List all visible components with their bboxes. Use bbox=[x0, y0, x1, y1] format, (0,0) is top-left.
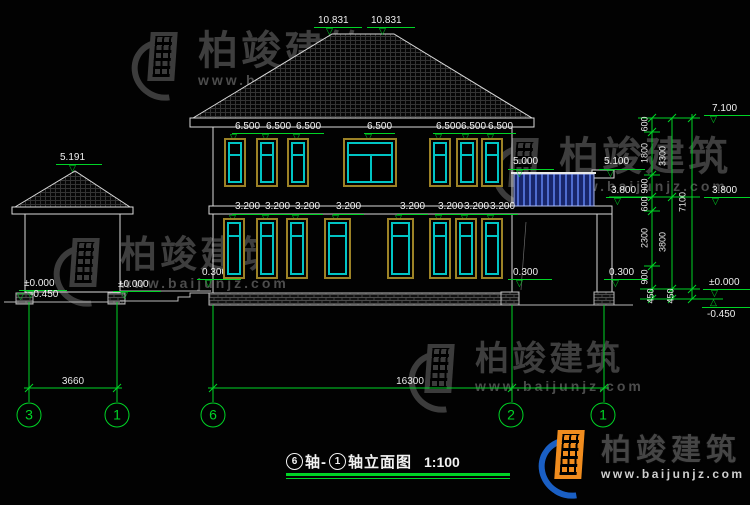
elevation-marker-triangle-up: △ bbox=[710, 298, 717, 306]
window-mullion-vertical bbox=[370, 154, 372, 181]
elevation-marker-line bbox=[508, 169, 554, 170]
elevation-marker-value: 0.300 bbox=[513, 268, 538, 278]
window-mullion-horizontal bbox=[435, 235, 445, 237]
window-f2-6 bbox=[456, 138, 478, 187]
floor1-window-head-label-line bbox=[232, 214, 263, 215]
window-f1-1 bbox=[223, 218, 245, 279]
floor1-window-head-label-value: 3.200 bbox=[400, 202, 425, 212]
floor2-window-head-label-value: 6.500 bbox=[436, 122, 461, 132]
window-f1-6 bbox=[429, 218, 451, 279]
elevation-marker-triangle: ▽ bbox=[612, 279, 619, 287]
elevation-marker-value: ±0.000 bbox=[118, 280, 149, 290]
dimension-chain-base-value: 450 bbox=[667, 288, 676, 303]
floor2-window-head-label-value: 6.500 bbox=[461, 122, 486, 132]
title-scale: 1:100 bbox=[424, 454, 460, 470]
brand-url: www.baijunjz.com bbox=[601, 467, 745, 481]
window-glazing bbox=[459, 222, 473, 275]
window-mullion-horizontal bbox=[230, 154, 240, 156]
elevation-marker-line bbox=[367, 27, 415, 28]
window-glazing bbox=[291, 142, 305, 183]
floor2-window-head-label-value: 6.500 bbox=[296, 122, 321, 132]
window-mullion-horizontal bbox=[487, 235, 497, 237]
window-glazing bbox=[433, 142, 447, 183]
axis-bubble-3: 3 bbox=[17, 403, 42, 428]
title-axis-start-bubble: 6 bbox=[286, 453, 303, 470]
elevation-marker-triangle: ▽ bbox=[379, 27, 386, 35]
axis-bubble-2: 2 bbox=[499, 403, 524, 428]
elevation-marker-value: 3.800 bbox=[611, 186, 636, 196]
pavilion-outline bbox=[12, 171, 133, 292]
window-glazing bbox=[347, 142, 393, 183]
window-mullion-horizontal bbox=[293, 154, 303, 156]
window-glazing bbox=[260, 222, 274, 275]
floor2-window-head-label-value: 6.500 bbox=[235, 122, 260, 132]
dimension-chain-value: 900 bbox=[641, 269, 650, 284]
floor1-window-head-label-value: 3.200 bbox=[336, 202, 361, 212]
elevation-marker-triangle: ▽ bbox=[326, 27, 333, 35]
balcony-railing bbox=[511, 173, 596, 206]
window-mullion-horizontal bbox=[330, 235, 345, 237]
window-mullion-horizontal bbox=[292, 235, 302, 237]
dimension-chain-value: 3800 bbox=[659, 232, 668, 252]
title-name: 轴立面图 bbox=[348, 451, 412, 472]
dimension-house-width: 16300 bbox=[396, 377, 424, 387]
window-f1-7 bbox=[455, 218, 477, 279]
elevation-marker-value: ±0.000 bbox=[24, 279, 55, 289]
window-f2-1 bbox=[224, 138, 246, 187]
window-mullion-horizontal bbox=[262, 154, 272, 156]
elevation-marker-value: 5.100 bbox=[604, 157, 629, 167]
floor2-window-head-label-value: 6.500 bbox=[488, 122, 513, 132]
floor2-window-head-label-value: 6.500 bbox=[367, 122, 392, 132]
window-f2-3 bbox=[287, 138, 309, 187]
elevation-marker-line bbox=[508, 279, 552, 280]
window-glazing bbox=[328, 222, 347, 275]
elevation-marker-triangle: ▽ bbox=[614, 197, 621, 205]
site-logo: 柏竣建筑 www.baijunjz.com bbox=[543, 428, 745, 486]
title-underline-thin bbox=[286, 478, 510, 479]
elevation-marker-value: 10.831 bbox=[371, 16, 402, 26]
floor1-window-head-label-value: 3.200 bbox=[464, 202, 489, 212]
floor1-window-head-label-value: 3.200 bbox=[295, 202, 320, 212]
window-glazing bbox=[460, 142, 474, 183]
floor1-window-head-label-value: 3.200 bbox=[490, 202, 515, 212]
elevation-marker-triangle: ▽ bbox=[121, 291, 128, 299]
window-mullion-horizontal bbox=[262, 235, 272, 237]
dimension-chain-value: 7100 bbox=[679, 192, 688, 212]
dimension-chain-value: 600 bbox=[641, 116, 650, 131]
dimension-chain-value: 600 bbox=[641, 196, 650, 211]
window-mullion-horizontal bbox=[487, 154, 497, 156]
window-f2-2 bbox=[256, 138, 278, 187]
elevation-marker-line bbox=[702, 307, 750, 308]
elevation-marker-value: 10.831 bbox=[318, 16, 349, 26]
window-f2-5 bbox=[429, 138, 451, 187]
elevation-marker-triangle: ▽ bbox=[607, 169, 614, 177]
elevation-marker-value: -0.450 bbox=[30, 290, 58, 300]
axis-bubble-6: 6 bbox=[201, 403, 226, 428]
window-f1-2 bbox=[256, 218, 278, 279]
window-f2-4 bbox=[343, 138, 397, 187]
title-underline-thick bbox=[286, 473, 510, 476]
dimension-chain-value: 2300 bbox=[641, 228, 650, 248]
plinth-and-ground bbox=[4, 291, 633, 305]
elevation-marker-triangle: ▽ bbox=[712, 197, 719, 205]
floor1-window-head-label-value: 3.200 bbox=[235, 202, 260, 212]
elevation-marker-triangle: ▽ bbox=[17, 292, 24, 300]
dimension-chain-value: 3300 bbox=[659, 146, 668, 166]
elevation-marker-triangle: ▽ bbox=[711, 289, 718, 297]
window-mullion-horizontal bbox=[462, 154, 472, 156]
elevation-marker-line bbox=[314, 27, 362, 28]
dimension-chain-value: 1800 bbox=[641, 143, 650, 163]
axis-bubble-1-left: 1 bbox=[105, 403, 130, 428]
window-glazing bbox=[433, 222, 447, 275]
dimension-pavilion-width: 3660 bbox=[62, 377, 84, 387]
title-axis-end-bubble: 1 bbox=[329, 453, 346, 470]
elevation-marker-line bbox=[197, 279, 241, 280]
elevation-marker-value: ±0.000 bbox=[709, 278, 740, 288]
window-glazing bbox=[485, 222, 499, 275]
window-f2-7 bbox=[481, 138, 503, 187]
window-glazing bbox=[227, 222, 241, 275]
window-mullion-horizontal bbox=[229, 235, 239, 237]
title-axis-mid: 轴- bbox=[305, 451, 327, 472]
elevation-marker-triangle: ▽ bbox=[710, 115, 717, 123]
window-glazing bbox=[228, 142, 242, 183]
window-mullion-horizontal bbox=[435, 154, 445, 156]
brand-logo-icon bbox=[543, 428, 593, 486]
window-f1-8 bbox=[481, 218, 503, 279]
cad-elevation-drawing: 柏竣建筑 www.baijunjz.com 柏竣建筑 www.baijunjz.… bbox=[0, 0, 750, 505]
window-mullion-horizontal bbox=[461, 235, 471, 237]
window-glazing bbox=[290, 222, 304, 275]
brand-name: 柏竣建筑 bbox=[601, 434, 745, 467]
window-glazing bbox=[485, 142, 499, 183]
elevation-marker-line bbox=[704, 197, 750, 198]
axis-bubble-1-right: 1 bbox=[591, 403, 616, 428]
elevation-marker-triangle: ▽ bbox=[69, 164, 76, 172]
elevation-marker-triangle: ▽ bbox=[516, 169, 523, 177]
window-mullion-horizontal bbox=[393, 235, 408, 237]
floor1-window-head-label-value: 3.200 bbox=[438, 202, 463, 212]
dimension-chain-value: 900 bbox=[641, 178, 650, 193]
floor2-window-head-label-value: 6.500 bbox=[266, 122, 291, 132]
elevation-marker-value: 0.300 bbox=[609, 268, 634, 278]
elevation-marker-triangle: ▽ bbox=[205, 279, 212, 287]
elevation-marker-value: 7.100 bbox=[712, 104, 737, 114]
elevation-marker-line bbox=[56, 164, 102, 165]
elevation-marker-triangle: ▽ bbox=[516, 279, 523, 287]
drawing-title: 6 轴- 1 轴立面图 1:100 bbox=[286, 451, 460, 472]
elevation-marker-value: 5.000 bbox=[513, 157, 538, 167]
window-glazing bbox=[391, 222, 410, 275]
window-f1-5 bbox=[387, 218, 414, 279]
dimension-chain-base-value: 450 bbox=[647, 288, 656, 303]
elevation-marker-line bbox=[599, 169, 645, 170]
elevation-marker-value: 5.191 bbox=[60, 153, 85, 163]
floor1-window-head-label-value: 3.200 bbox=[265, 202, 290, 212]
window-glazing bbox=[260, 142, 274, 183]
window-f1-3 bbox=[286, 218, 308, 279]
elevation-marker-value: -0.450 bbox=[707, 310, 735, 320]
window-f1-4 bbox=[324, 218, 351, 279]
elevation-marker-value: 3.800 bbox=[712, 186, 737, 196]
